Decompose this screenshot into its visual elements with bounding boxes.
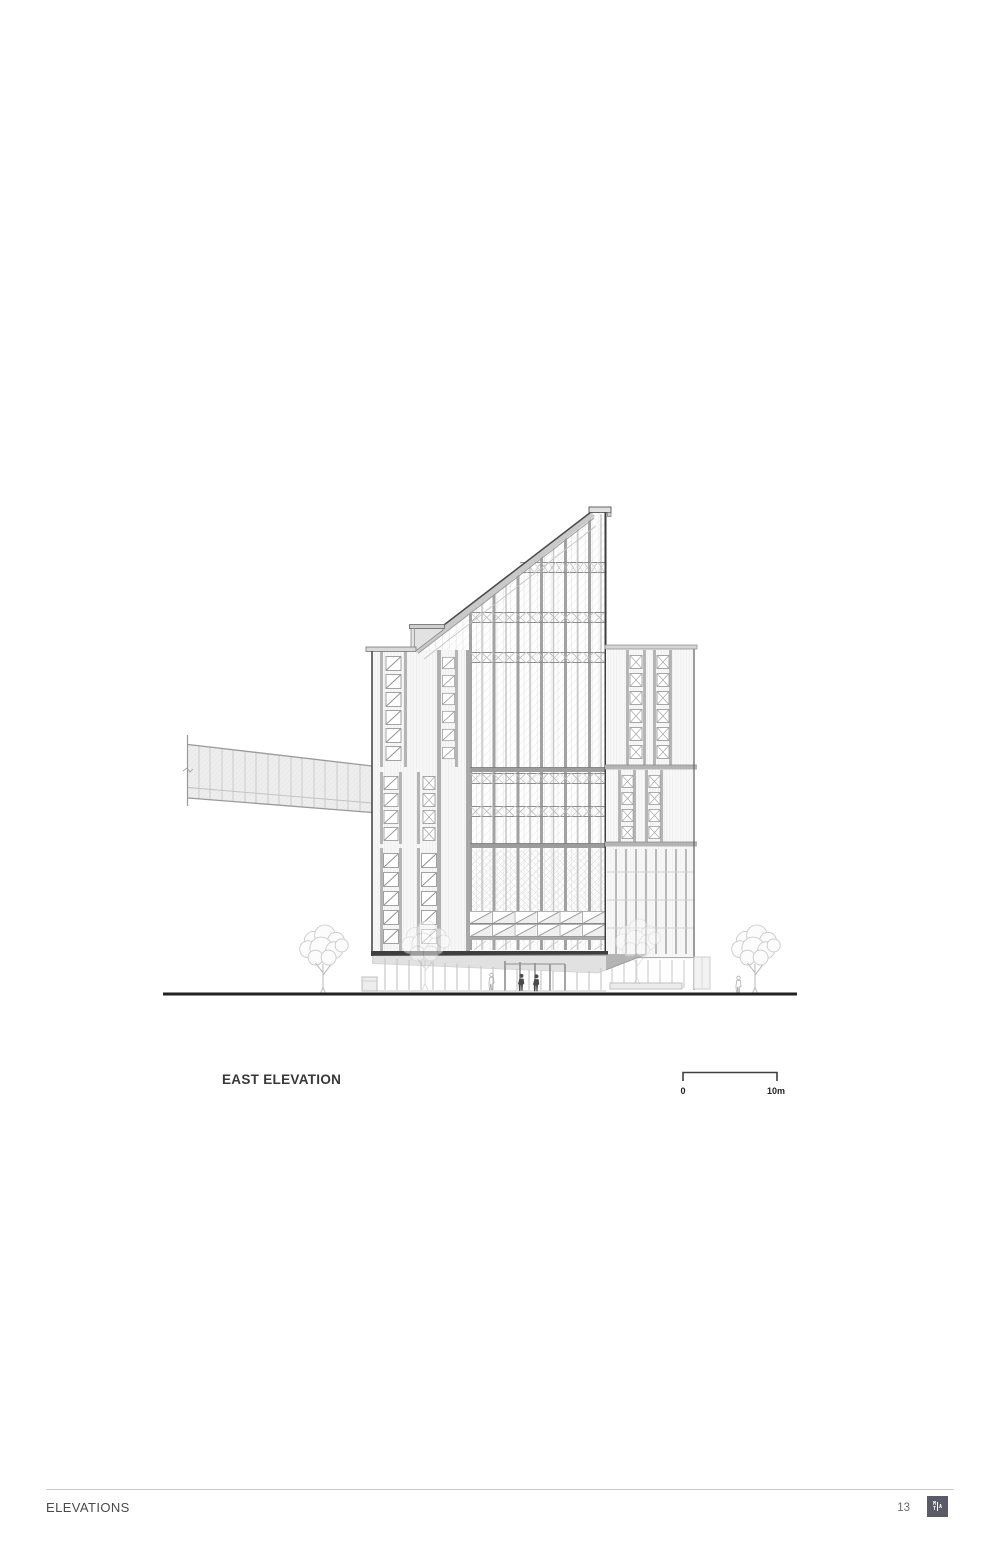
tree-left	[300, 925, 349, 994]
logo-letter-bottom: T	[933, 1507, 936, 1512]
low-wall	[694, 957, 710, 989]
annex-slab	[605, 842, 697, 847]
footer-divider	[46, 1489, 954, 1490]
ground-line	[163, 993, 797, 996]
scale-start-label: 0	[680, 1086, 685, 1096]
scale-end-label: 10m	[767, 1086, 785, 1096]
studio-logo: M T A	[927, 1496, 948, 1517]
scale-bar: 0 10m	[680, 1073, 785, 1097]
ground-floor	[362, 951, 646, 991]
annex-slab	[605, 765, 697, 770]
bench	[610, 983, 682, 989]
skybridge	[183, 735, 375, 816]
tree-right	[732, 925, 781, 994]
planter	[362, 977, 377, 991]
left-facade-section	[372, 650, 470, 951]
logo-letter-right: A	[939, 1504, 942, 1510]
storefront	[373, 956, 606, 991]
sheet-page: 0 10m EAST ELEVATION ELEVATIONS 13 M T A	[0, 0, 1000, 1546]
logo-divider	[937, 1502, 938, 1511]
elevation-drawing: 0 10m	[0, 0, 1000, 1546]
footer-section-label: ELEVATIONS	[46, 1500, 130, 1515]
annex-parapet-cap	[605, 645, 697, 649]
window-stack	[384, 854, 399, 944]
page-number: 13	[880, 1502, 910, 1514]
main-tower	[366, 507, 611, 955]
left-parapet-cap	[366, 647, 416, 652]
drawing-title: EAST ELEVATION	[222, 1072, 341, 1087]
mesh-screen	[470, 850, 605, 911]
person-figure	[736, 976, 741, 993]
